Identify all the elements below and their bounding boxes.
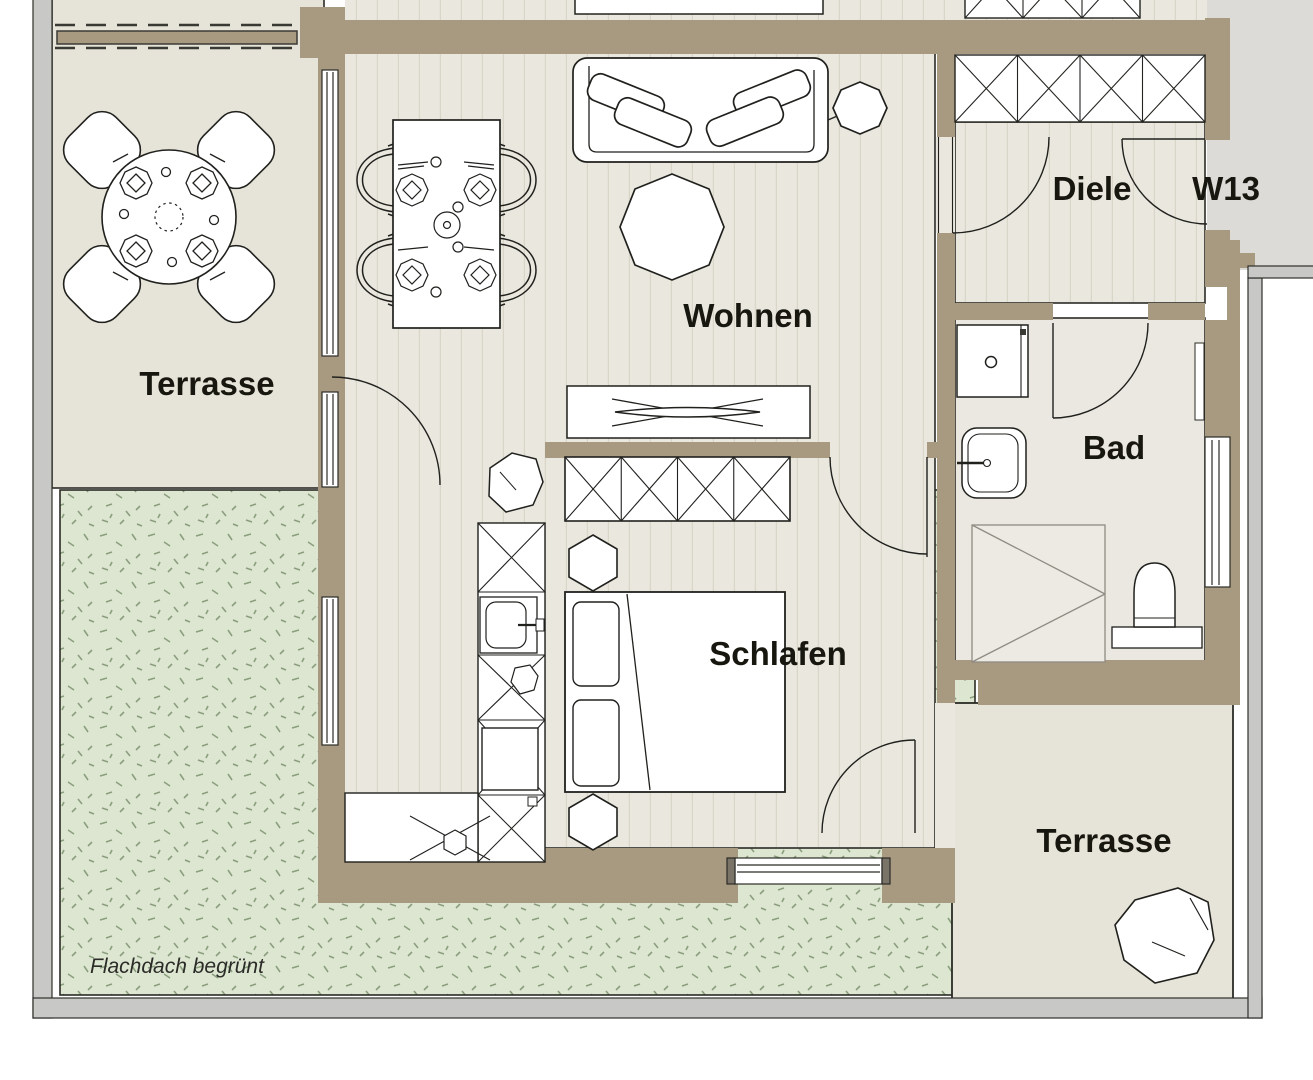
window-kitchen-west: [322, 597, 338, 745]
kitchen-switch: [528, 797, 537, 806]
coffee-table: [620, 174, 724, 280]
wall-hall-west-stub: [937, 20, 955, 137]
terrace-door-threshold: [935, 703, 955, 848]
toilet-bowl: [1134, 563, 1175, 627]
shower: [972, 525, 1105, 662]
wall-bath-south: [955, 660, 1240, 680]
wall-bath-east-upper: [1205, 320, 1227, 437]
floor-plan-canvas: Terrasse Wohnen Diele W13 Bad Schlafen T…: [0, 0, 1313, 1080]
wall-terrace-north: [978, 680, 1240, 705]
wall-bath-east-lower: [1205, 587, 1227, 662]
wall-bath-north-right: [1148, 303, 1205, 320]
place-setting: [396, 259, 428, 291]
place-setting: [120, 167, 152, 199]
wardrobe-cut: [965, 0, 1140, 18]
room-label-hall: Diele: [1053, 170, 1132, 207]
floor-plan: Terrasse Wohnen Diele W13 Bad Schlafen T…: [0, 0, 1313, 1080]
wall-hall-east: [1205, 18, 1230, 130]
place-setting: [464, 174, 496, 206]
roof-note-label: Flachdach begrünt: [90, 955, 265, 978]
window-bath-east: [1205, 437, 1230, 587]
room-label-bath: Bad: [1083, 429, 1145, 466]
bath-niche: [1195, 343, 1204, 420]
place-setting: [186, 235, 218, 267]
unit-label: W13: [1192, 170, 1260, 207]
hall-floor: [955, 122, 1205, 303]
sideboard-cut: [575, 0, 823, 14]
entrance-jamb-top: [1205, 128, 1230, 140]
kitchen-sink: [480, 597, 544, 653]
bath-sink: [957, 428, 1026, 498]
room-label-living: Wohnen: [683, 297, 813, 334]
place-setting: [396, 174, 428, 206]
window-sleeping-south: [735, 858, 882, 884]
sofa: [573, 58, 842, 162]
oven: [482, 728, 538, 790]
wall-bath-north-left: [940, 303, 1053, 320]
pillow: [573, 602, 619, 686]
tv-lowboard: [567, 386, 810, 438]
pergola-beam: [57, 31, 297, 44]
wall-northwest-block: [300, 7, 345, 58]
wall-east-step: [1205, 240, 1240, 287]
side-table: [833, 82, 887, 134]
window-cap-right: [882, 858, 890, 884]
wall-sleeping-north: [545, 442, 830, 458]
window-living-west: [322, 70, 338, 356]
pillow: [573, 700, 619, 786]
place-setting: [186, 167, 218, 199]
wall-north: [300, 20, 1230, 54]
washing-machine: [957, 325, 1028, 397]
place-setting: [464, 259, 496, 291]
room-label-terrace-top: Terrasse: [139, 365, 274, 402]
window-cap-left: [727, 858, 735, 884]
wall-south-right: [882, 848, 955, 903]
kitchen-item: [444, 830, 466, 855]
place-setting: [120, 235, 152, 267]
toilet-cistern: [1112, 627, 1202, 648]
terrace-door-leaf: [322, 392, 338, 487]
parapet-left: [33, 0, 52, 1018]
parapet-right: [1248, 278, 1262, 1018]
railing-east: [1248, 266, 1313, 278]
room-label-terrace-bottom: Terrasse: [1036, 822, 1171, 859]
kitchen-counter: [478, 523, 545, 862]
room-label-sleeping: Schlafen: [709, 635, 847, 672]
parapet-bottom: [33, 998, 1262, 1018]
